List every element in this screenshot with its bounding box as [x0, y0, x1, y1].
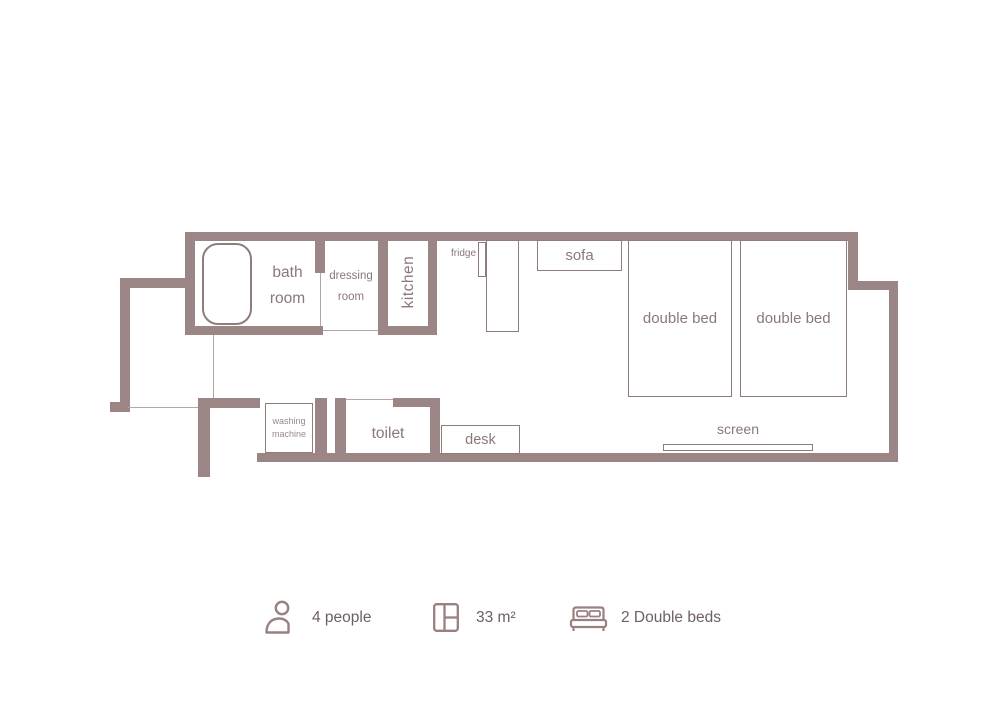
legend-area-label: 33 m²	[476, 609, 516, 627]
kitchen-label: kitchen	[401, 232, 417, 332]
floorplan-icon	[433, 603, 459, 632]
wall-entrance-left	[198, 398, 210, 477]
floor-plan: sofa double bed double bed washing machi…	[0, 0, 1000, 707]
screen-label: screen	[663, 421, 813, 438]
line-dressing-bottom	[323, 330, 378, 331]
toilet-label: toilet	[346, 425, 430, 444]
wall-washing-top	[198, 398, 260, 408]
legend-beds-label: 2 Double beds	[621, 609, 721, 627]
line-toilet-door	[346, 399, 393, 400]
wall-washing-right	[315, 398, 327, 455]
wall-kitchen-left	[378, 232, 388, 335]
double-bed-2-outline: double bed	[740, 240, 847, 397]
wall-right	[889, 281, 898, 462]
double-bed-1-label: double bed	[643, 310, 717, 327]
dressing-room-label: dressing room	[323, 266, 379, 309]
wall-bottom	[257, 453, 898, 462]
sofa-label: sofa	[565, 247, 593, 264]
wall-entry-vertical	[120, 278, 130, 412]
washing-machine-label: washing machine	[272, 415, 306, 442]
person-icon	[262, 599, 296, 636]
wall-bathroom-left	[185, 232, 195, 335]
fridge-outline	[478, 242, 486, 277]
desk-outline: desk	[441, 425, 520, 454]
legend-beds: 2 Double beds	[569, 603, 721, 633]
bathtub	[202, 243, 252, 325]
sofa-outline: sofa	[537, 240, 622, 271]
wall-entry-foot	[110, 402, 130, 412]
screen-outline	[663, 444, 813, 451]
wall-toilet-left	[335, 398, 346, 455]
double-bed-icon	[569, 603, 608, 633]
wall-bathroom-bottom	[185, 326, 323, 335]
wall-kitchen-right	[428, 241, 437, 335]
double-bed-1-outline: double bed	[628, 240, 732, 397]
double-bed-2-label: double bed	[756, 310, 830, 327]
washing-machine-outline: washing machine	[265, 403, 313, 453]
legend-capacity-label: 4 people	[312, 609, 371, 627]
legend-area: 33 m²	[433, 603, 516, 632]
counter-outline	[486, 240, 519, 332]
fridge-label: fridge	[440, 248, 476, 260]
line-entry-horizontal	[128, 407, 198, 408]
line-hall-vertical	[213, 335, 214, 398]
desk-label: desk	[465, 432, 496, 448]
bathroom-label: bath room	[250, 260, 325, 313]
wall-toilet-right	[430, 398, 440, 455]
legend-capacity: 4 people	[262, 599, 371, 636]
